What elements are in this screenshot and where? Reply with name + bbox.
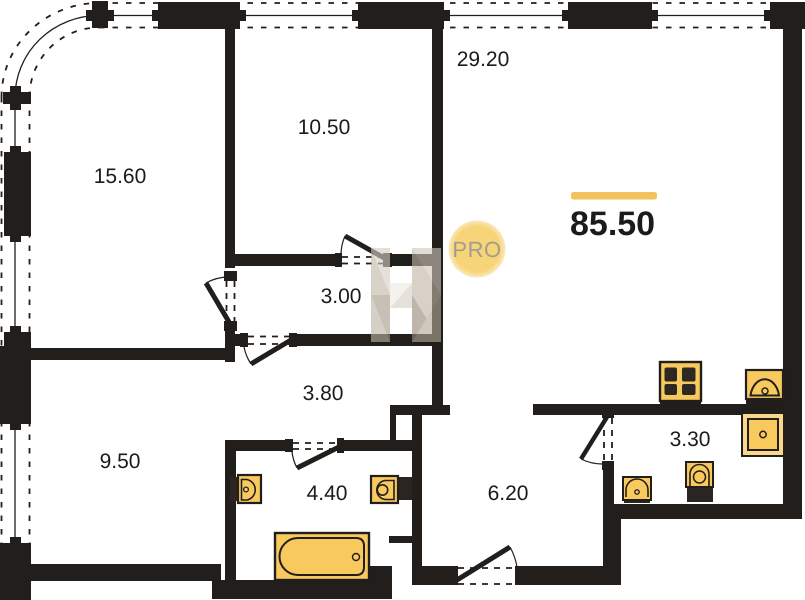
svg-text:3.00: 3.00: [321, 285, 362, 308]
svg-text:4.40: 4.40: [307, 482, 348, 505]
svg-text:29.20: 29.20: [457, 48, 510, 71]
svg-text:9.50: 9.50: [100, 450, 141, 473]
svg-text:10.50: 10.50: [298, 116, 351, 139]
svg-text:15.60: 15.60: [94, 165, 147, 188]
svg-text:6.20: 6.20: [488, 482, 529, 505]
svg-text:85.50: 85.50: [570, 205, 655, 243]
svg-text:3.80: 3.80: [303, 382, 344, 405]
svg-text:PRO: PRO: [452, 237, 501, 262]
svg-text:3.30: 3.30: [670, 428, 711, 451]
